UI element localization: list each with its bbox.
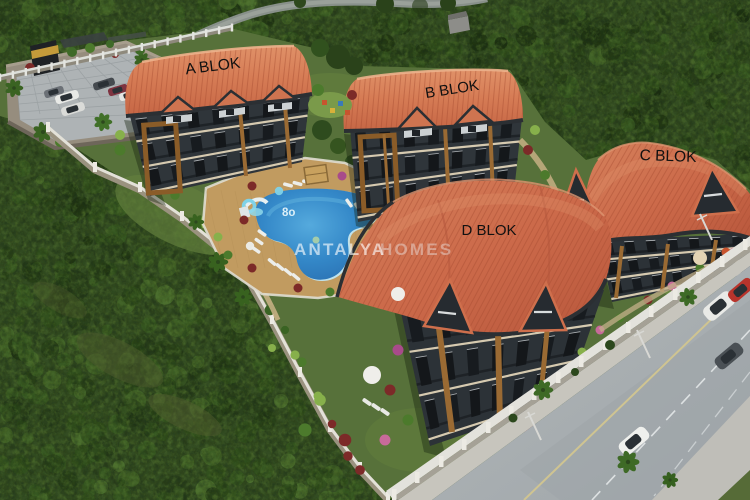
svg-text:ANTALYA: ANTALYA bbox=[294, 240, 386, 259]
svg-text:C BLOK: C BLOK bbox=[639, 147, 697, 166]
svg-text:D BLOK: D BLOK bbox=[461, 222, 516, 239]
svg-text:HOMES: HOMES bbox=[380, 240, 453, 259]
svg-text:8o: 8o bbox=[282, 207, 295, 219]
